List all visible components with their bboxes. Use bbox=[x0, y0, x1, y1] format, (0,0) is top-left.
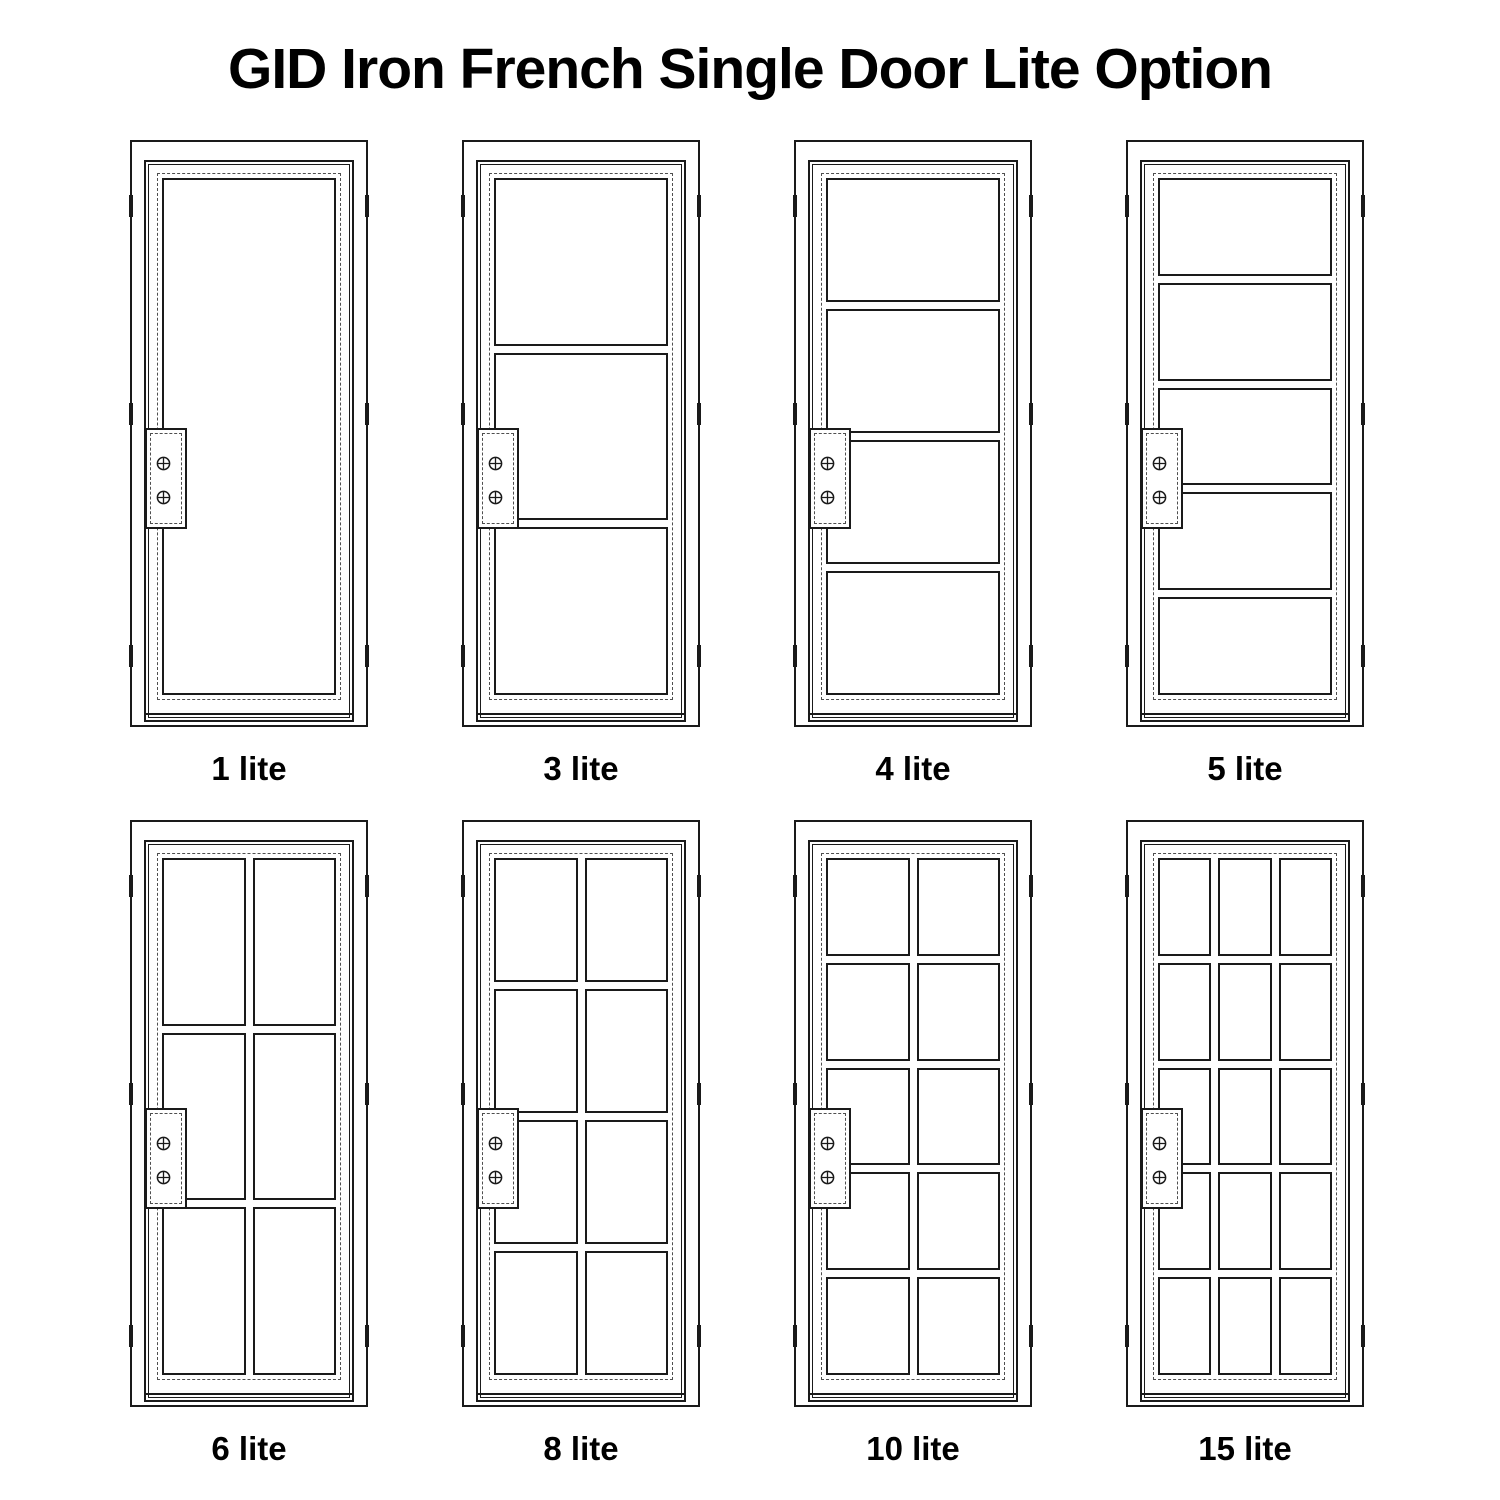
lite-panel bbox=[1158, 597, 1332, 695]
lite-panel bbox=[162, 1207, 246, 1375]
door-label: 10 lite bbox=[794, 1430, 1032, 1468]
hinge-mark-icon bbox=[461, 403, 465, 425]
door-diagram bbox=[462, 820, 700, 1407]
lite-panel bbox=[585, 1251, 669, 1375]
door-diagram bbox=[794, 820, 1032, 1407]
hinge-mark-icon bbox=[793, 645, 797, 667]
hinge-mark-icon bbox=[1125, 645, 1129, 667]
hinge-mark-icon bbox=[1361, 645, 1365, 667]
door-bottom-rail bbox=[1142, 713, 1348, 722]
hinge-mark-icon bbox=[129, 195, 133, 217]
screw-icon bbox=[820, 490, 835, 505]
lite-panel bbox=[1158, 492, 1332, 590]
screw-icon bbox=[488, 1170, 503, 1185]
lite-panel bbox=[917, 963, 1001, 1061]
hinge-mark-icon bbox=[461, 875, 465, 897]
lite-panel bbox=[1158, 1277, 1211, 1375]
lite-panel bbox=[1158, 963, 1211, 1061]
screw-icon bbox=[488, 1136, 503, 1151]
hinge-mark-icon bbox=[129, 645, 133, 667]
hinge-mark-icon bbox=[129, 1325, 133, 1347]
screw-icon bbox=[156, 456, 171, 471]
lite-panel bbox=[253, 858, 337, 1026]
lite-grid bbox=[162, 858, 336, 1375]
lite-panel bbox=[162, 858, 246, 1026]
screw-icon bbox=[1152, 490, 1167, 505]
hinge-mark-icon bbox=[129, 875, 133, 897]
screw-icon bbox=[820, 456, 835, 471]
lite-grid bbox=[494, 858, 668, 1375]
door-bottom-rail bbox=[810, 1393, 1016, 1402]
lite-panel bbox=[585, 989, 669, 1113]
lite-panel bbox=[494, 989, 578, 1113]
lite-grid bbox=[826, 858, 1000, 1375]
lite-panel bbox=[1279, 1172, 1332, 1270]
hinge-mark-icon bbox=[365, 875, 369, 897]
lite-panel bbox=[826, 309, 1000, 433]
screw-icon bbox=[1152, 1136, 1167, 1151]
door-label: 6 lite bbox=[130, 1430, 368, 1468]
lock-plate bbox=[145, 428, 187, 529]
lite-panel bbox=[1279, 1068, 1332, 1166]
door-bottom-rail bbox=[146, 1393, 352, 1402]
door-diagram bbox=[1126, 820, 1364, 1407]
hinge-mark-icon bbox=[697, 1325, 701, 1347]
hinge-mark-icon bbox=[793, 875, 797, 897]
lite-panel bbox=[494, 353, 668, 521]
lite-panel bbox=[1279, 963, 1332, 1061]
hinge-mark-icon bbox=[697, 875, 701, 897]
lite-panel bbox=[1218, 1068, 1271, 1166]
hinge-mark-icon bbox=[1029, 645, 1033, 667]
page-title: GID Iron French Single Door Lite Option bbox=[0, 40, 1500, 100]
screw-icon bbox=[1152, 456, 1167, 471]
hinge-mark-icon bbox=[1029, 403, 1033, 425]
lite-panel bbox=[1218, 1277, 1271, 1375]
lite-grid bbox=[494, 178, 668, 695]
door-option-8-lite: 8 lite bbox=[462, 820, 700, 1468]
hinge-mark-icon bbox=[365, 1083, 369, 1105]
lite-panel bbox=[917, 1172, 1001, 1270]
lite-panel bbox=[826, 178, 1000, 302]
hinge-mark-icon bbox=[1361, 1325, 1365, 1347]
door-label: 1 lite bbox=[130, 750, 368, 788]
door-diagram bbox=[130, 140, 368, 727]
hinge-mark-icon bbox=[793, 195, 797, 217]
lite-panel bbox=[1158, 858, 1211, 956]
lite-panel bbox=[826, 963, 910, 1061]
lite-grid bbox=[1158, 858, 1332, 1375]
hinge-mark-icon bbox=[1125, 1325, 1129, 1347]
door-diagram bbox=[794, 140, 1032, 727]
hinge-mark-icon bbox=[697, 403, 701, 425]
hinge-mark-icon bbox=[365, 195, 369, 217]
lite-panel bbox=[826, 571, 1000, 695]
lock-plate bbox=[1141, 428, 1183, 529]
hinge-mark-icon bbox=[793, 1083, 797, 1105]
lite-panel bbox=[1158, 388, 1332, 486]
screw-icon bbox=[820, 1136, 835, 1151]
screw-icon bbox=[156, 490, 171, 505]
screw-icon bbox=[488, 456, 503, 471]
door-bottom-rail bbox=[146, 713, 352, 722]
lite-panel bbox=[162, 178, 336, 695]
lite-panel bbox=[917, 1277, 1001, 1375]
door-label: 15 lite bbox=[1126, 1430, 1364, 1468]
lite-panel bbox=[494, 178, 668, 346]
screw-icon bbox=[820, 1170, 835, 1185]
hinge-mark-icon bbox=[1125, 195, 1129, 217]
lite-panel bbox=[494, 1251, 578, 1375]
lock-plate bbox=[477, 1108, 519, 1209]
door-bottom-rail bbox=[810, 713, 1016, 722]
screw-icon bbox=[156, 1136, 171, 1151]
lite-panel bbox=[1218, 858, 1271, 956]
lite-panel bbox=[585, 858, 669, 982]
hinge-mark-icon bbox=[1125, 875, 1129, 897]
screw-icon bbox=[488, 490, 503, 505]
lite-grid bbox=[1158, 178, 1332, 695]
hinge-mark-icon bbox=[461, 1083, 465, 1105]
lite-panel bbox=[826, 858, 910, 956]
door-option-15-lite: 15 lite bbox=[1126, 820, 1364, 1468]
lite-panel bbox=[585, 1120, 669, 1244]
hinge-mark-icon bbox=[1361, 403, 1365, 425]
lite-panel bbox=[1218, 1172, 1271, 1270]
lock-plate bbox=[1141, 1108, 1183, 1209]
lock-plate bbox=[145, 1108, 187, 1209]
lite-panel bbox=[1158, 283, 1332, 381]
door-label: 8 lite bbox=[462, 1430, 700, 1468]
hinge-mark-icon bbox=[793, 403, 797, 425]
hinge-mark-icon bbox=[365, 403, 369, 425]
lite-panel bbox=[253, 1207, 337, 1375]
lock-plate bbox=[477, 428, 519, 529]
lite-panel bbox=[826, 440, 1000, 564]
hinge-mark-icon bbox=[1361, 1083, 1365, 1105]
door-label: 4 lite bbox=[794, 750, 1032, 788]
hinge-mark-icon bbox=[1125, 403, 1129, 425]
door-option-6-lite: 6 lite bbox=[130, 820, 368, 1468]
screw-icon bbox=[1152, 1170, 1167, 1185]
lite-grid bbox=[826, 178, 1000, 695]
door-bottom-rail bbox=[478, 713, 684, 722]
door-bottom-rail bbox=[478, 1393, 684, 1402]
hinge-mark-icon bbox=[365, 1325, 369, 1347]
door-diagram bbox=[462, 140, 700, 727]
door-label: 3 lite bbox=[462, 750, 700, 788]
lite-panel bbox=[1158, 178, 1332, 276]
hinge-mark-icon bbox=[1029, 1325, 1033, 1347]
hinge-mark-icon bbox=[461, 1325, 465, 1347]
door-option-4-lite: 4 lite bbox=[794, 140, 1032, 788]
lite-panel bbox=[1279, 858, 1332, 956]
hinge-mark-icon bbox=[129, 403, 133, 425]
door-diagram bbox=[130, 820, 368, 1407]
hinge-mark-icon bbox=[365, 645, 369, 667]
lite-panel bbox=[253, 1033, 337, 1201]
hinge-mark-icon bbox=[1125, 1083, 1129, 1105]
lite-panel bbox=[1279, 1277, 1332, 1375]
lock-plate bbox=[809, 1108, 851, 1209]
hinge-mark-icon bbox=[1029, 875, 1033, 897]
hinge-mark-icon bbox=[461, 195, 465, 217]
door-option-5-lite: 5 lite bbox=[1126, 140, 1364, 788]
door-label: 5 lite bbox=[1126, 750, 1364, 788]
lock-plate bbox=[809, 428, 851, 529]
lite-panel bbox=[494, 858, 578, 982]
hinge-mark-icon bbox=[793, 1325, 797, 1347]
door-option-10-lite: 10 lite bbox=[794, 820, 1032, 1468]
lite-panel bbox=[494, 527, 668, 695]
lite-panel bbox=[1218, 963, 1271, 1061]
lite-panel bbox=[917, 1068, 1001, 1166]
hinge-mark-icon bbox=[1029, 195, 1033, 217]
screw-icon bbox=[156, 1170, 171, 1185]
hinge-mark-icon bbox=[697, 195, 701, 217]
hinge-mark-icon bbox=[697, 645, 701, 667]
hinge-mark-icon bbox=[1361, 875, 1365, 897]
lite-panel bbox=[826, 1277, 910, 1375]
door-option-1-lite: 1 lite bbox=[130, 140, 368, 788]
door-option-3-lite: 3 lite bbox=[462, 140, 700, 788]
lite-panel bbox=[917, 858, 1001, 956]
hinge-mark-icon bbox=[461, 645, 465, 667]
door-bottom-rail bbox=[1142, 1393, 1348, 1402]
door-diagram bbox=[1126, 140, 1364, 727]
hinge-mark-icon bbox=[1361, 195, 1365, 217]
hinge-mark-icon bbox=[697, 1083, 701, 1105]
hinge-mark-icon bbox=[1029, 1083, 1033, 1105]
lite-grid bbox=[162, 178, 336, 695]
hinge-mark-icon bbox=[129, 1083, 133, 1105]
